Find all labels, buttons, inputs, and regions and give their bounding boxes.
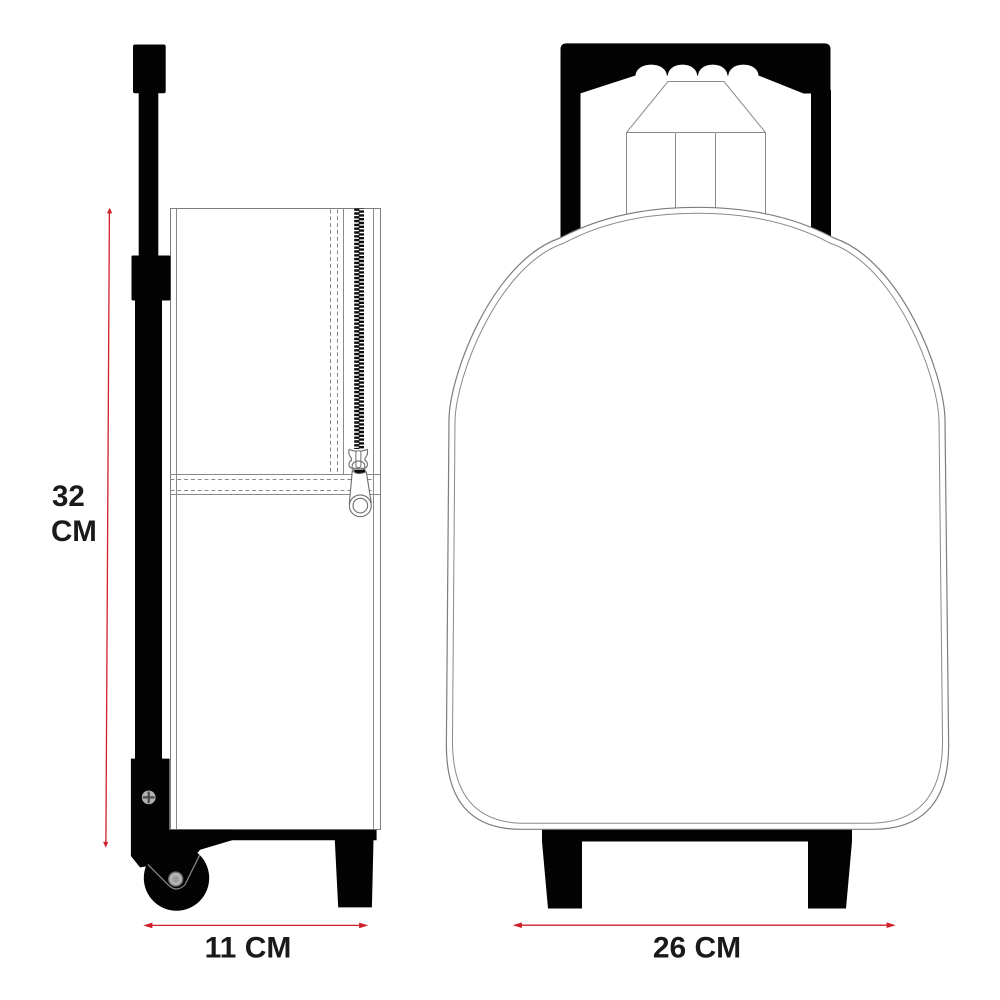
svg-text:CM: CM (51, 515, 97, 548)
svg-text:32: 32 (52, 480, 85, 513)
svg-text:11 CM: 11 CM (205, 932, 292, 965)
svg-text:26 CM: 26 CM (653, 932, 741, 965)
